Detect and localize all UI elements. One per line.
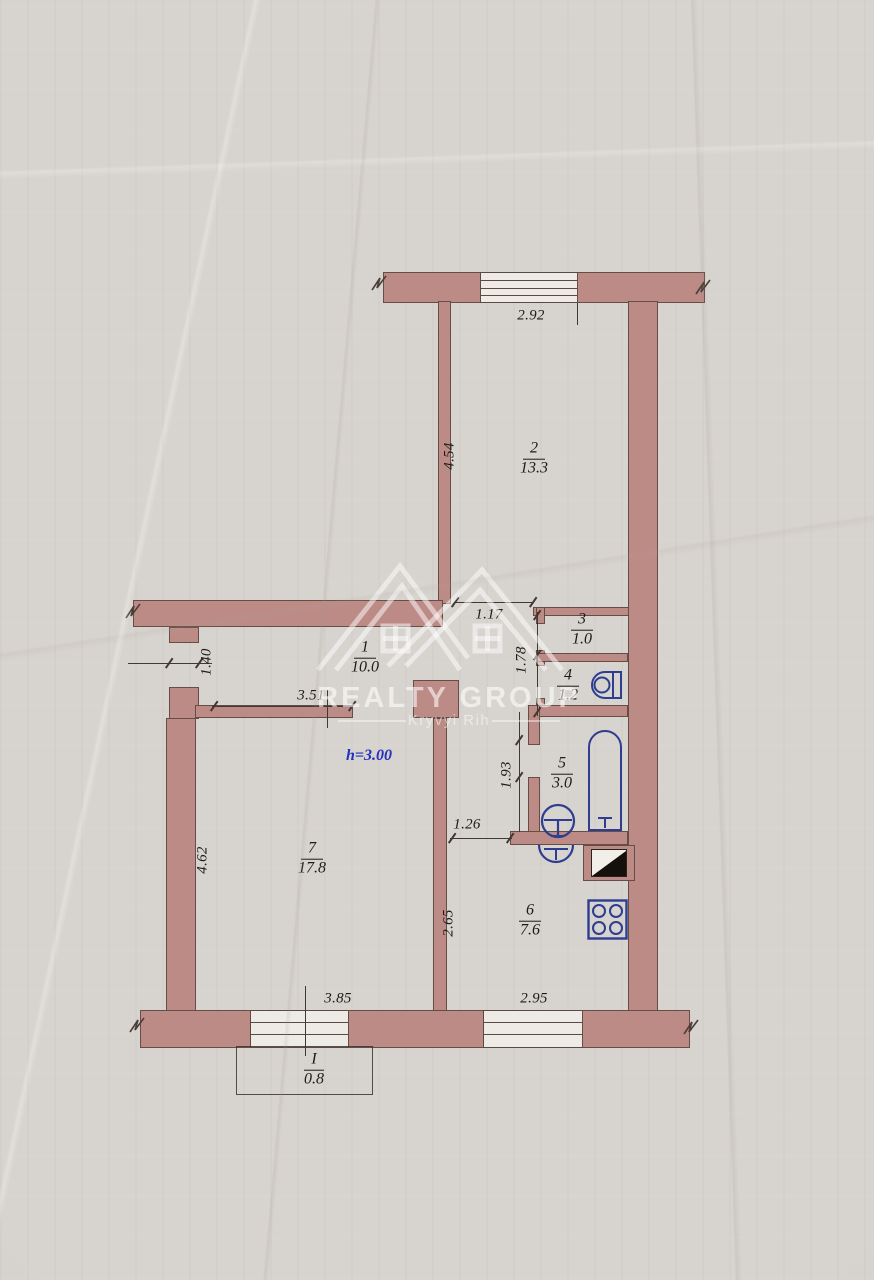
wall-west-above-door: [169, 627, 199, 643]
toilet-icon: [589, 670, 623, 701]
washbasin-icon: [539, 803, 577, 841]
wall-west-room7: [166, 718, 196, 1011]
wall-break-icon: [682, 1018, 700, 1040]
dim-2-95: 2.95: [520, 991, 547, 1008]
wall-north-right: [577, 272, 705, 303]
window-room2: [480, 272, 578, 303]
balcony-label: I 0.8: [304, 1052, 324, 1089]
dim-line: [519, 712, 520, 832]
wall-break-icon: [124, 602, 142, 624]
kitchen-sink-icon: [537, 843, 575, 867]
wall-break-icon: [694, 278, 712, 300]
wall-south-2: [348, 1010, 484, 1048]
dim-1-40: 1.40: [199, 648, 216, 675]
stove-icon: [587, 899, 628, 940]
window-kitchen: [483, 1010, 583, 1048]
wall-room7-kitchen: [433, 718, 447, 1011]
room-label-6: 6 7.6: [519, 903, 541, 940]
watermark-rule: [492, 720, 560, 722]
wall-east: [628, 301, 658, 1048]
dim-4-54: 4.54: [442, 442, 459, 469]
ventilation-shaft-icon: [591, 849, 627, 877]
dim-4-62: 4.62: [195, 846, 212, 873]
dim-1-26: 1.26: [453, 817, 480, 834]
dim-line: [450, 838, 512, 839]
dim-2-92: 2.92: [517, 308, 544, 325]
wall-break-icon: [128, 1016, 146, 1038]
room-label-5: 5 3.0: [551, 756, 573, 793]
witness-line: [577, 303, 578, 325]
bathtub-icon: [586, 726, 624, 832]
watermark-rule: [338, 720, 406, 722]
window-room7: [250, 1010, 349, 1048]
watermark-logo-icon: [310, 552, 572, 682]
room-label-3: 3 1.0: [571, 612, 593, 649]
wall-north-left: [383, 272, 481, 303]
dim-1-93: 1.93: [499, 761, 516, 788]
ceiling-height-label: h=3.00: [346, 747, 392, 765]
scanned-floor-plan-sheet: 2.92 4.54 1.17 1.40 3.51 1.78 1.93 1.26 …: [0, 0, 874, 1280]
room-label-7: 7 17.8: [298, 841, 326, 878]
wall-south-3: [582, 1010, 690, 1048]
room-label-2: 2 13.3: [520, 441, 548, 478]
wall-break-icon: [370, 274, 388, 296]
watermark-brand: REALTY GROUP: [317, 682, 581, 715]
wall-south-1: [140, 1010, 251, 1048]
dim-2-65: 2.65: [441, 909, 458, 936]
witness-line: [305, 986, 306, 1056]
dim-3-85: 3.85: [324, 991, 351, 1008]
watermark-city: Kryvyi Rih: [408, 712, 491, 729]
